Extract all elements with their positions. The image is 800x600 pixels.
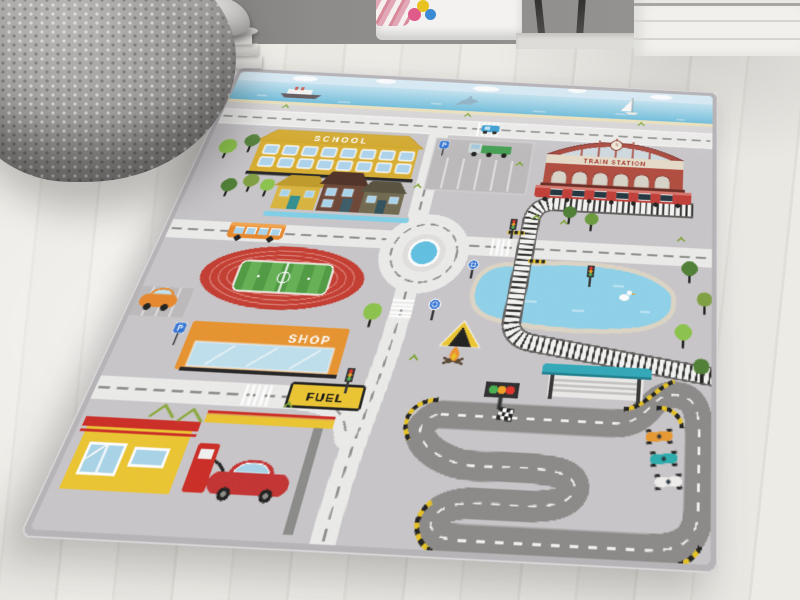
blanket: [376, 0, 410, 26]
dresser: [634, 0, 800, 56]
baseboard: [516, 33, 648, 49]
toy-balloons: [408, 0, 438, 26]
kids-room-photo: SCHOOL P: [0, 0, 800, 600]
